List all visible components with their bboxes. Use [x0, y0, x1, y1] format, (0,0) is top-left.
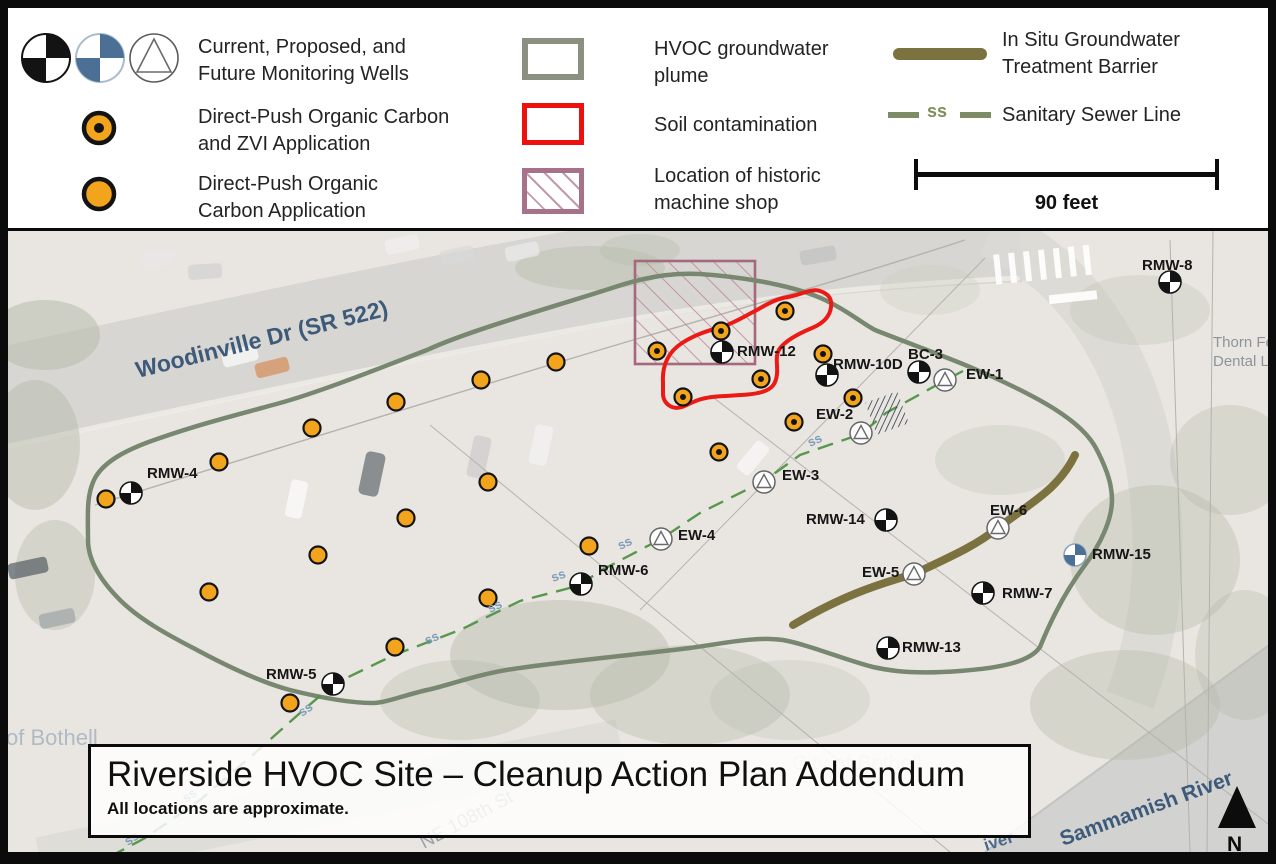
machine-shop-swatch — [522, 168, 584, 214]
carbon-application-icon — [79, 174, 119, 214]
legend-carbon-label: Direct-Push Organic Carbon Application — [198, 171, 378, 225]
well-label-ew-1: EW-1 — [966, 366, 1003, 383]
well-marker-rmw-15 — [1064, 544, 1086, 566]
carbon-injection-point — [387, 639, 404, 656]
scale-bar: 90 feet — [914, 159, 1219, 191]
well-label-bc-3: BC-3 — [908, 346, 943, 363]
scale-bar-tick — [914, 159, 918, 190]
well-label-ew-6: EW-6 — [990, 502, 1027, 519]
proposed-well-icon — [76, 34, 124, 82]
well-marker-ew-4 — [650, 528, 672, 550]
scale-bar-line — [914, 172, 1219, 177]
legend-soil-label: Soil contamination — [654, 112, 817, 139]
well-marker-rmw-14 — [875, 509, 897, 531]
scale-bar-label: 90 feet — [914, 192, 1219, 215]
well-marker-ew-1 — [934, 369, 956, 391]
thorn-dental-line2-label: Dental L — [1213, 353, 1268, 370]
current-well-icon — [22, 34, 70, 82]
carbon-injection-point — [304, 420, 321, 437]
north-arrow-label: N — [1227, 833, 1242, 852]
map-subtitle: All locations are approximate. — [107, 799, 1028, 819]
legend-monitoring-wells-label: Current, Proposed, and Future Monitoring… — [198, 34, 409, 88]
zvi-injection-point — [649, 343, 666, 360]
legend-barrier-label: In Situ Groundwater Treatment Barrier — [1002, 27, 1180, 81]
zvi-injection-point — [845, 390, 862, 407]
well-label-ew-2: EW-2 — [816, 406, 853, 423]
well-label-ew-4: EW-4 — [678, 527, 716, 544]
zvi-injection-point — [815, 346, 832, 363]
well-label-rmw-10d: RMW-10D — [833, 356, 903, 373]
legend-zvi-label: Direct-Push Organic Carbon and ZVI Appli… — [198, 104, 449, 158]
title-box: Riverside HVOC Site – Cleanup Action Pla… — [88, 744, 1031, 838]
well-label-rmw-5: RMW-5 — [266, 666, 317, 683]
legend-sewer-label: Sanitary Sewer Line — [1002, 102, 1181, 129]
scale-bar-tick — [1215, 159, 1219, 190]
well-marker-rmw-12 — [711, 341, 733, 363]
legend-machine-shop-label: Location of historic machine shop — [654, 163, 821, 217]
zvi-injection-point — [713, 323, 730, 340]
of-bothell-label: of Bothell — [8, 725, 98, 750]
zvi-injection-point — [711, 444, 728, 461]
zvi-injection-point — [777, 303, 794, 320]
well-marker-ew-3 — [753, 471, 775, 493]
legend: Current, Proposed, and Future Monitoring… — [8, 8, 1268, 228]
carbon-injection-point — [211, 454, 228, 471]
zvi-injection-point — [753, 371, 770, 388]
zvi-injection-point — [786, 414, 803, 431]
legend-plume-label: HVOC groundwater plume — [654, 36, 829, 90]
zvi-application-icon — [79, 108, 119, 148]
carbon-injection-point — [480, 474, 497, 491]
map-title: Riverside HVOC Site – Cleanup Action Pla… — [107, 755, 1028, 795]
well-marker-ew-6 — [987, 517, 1009, 539]
carbon-injection-point — [201, 584, 218, 601]
well-label-rmw-7: RMW-7 — [1002, 585, 1053, 602]
sewer-dash-icon — [888, 112, 919, 118]
well-marker-rmw-7 — [972, 582, 994, 604]
carbon-injection-point — [581, 538, 598, 555]
zvi-injection-point — [675, 389, 692, 406]
figure-frame: Current, Proposed, and Future Monitoring… — [0, 0, 1276, 864]
well-label-ew-5: EW-5 — [862, 564, 899, 581]
site-map: ssssssssssssssss RMW-4RMW-5RMW-6RMW-7RMW… — [8, 231, 1268, 852]
well-marker-rmw-8 — [1159, 271, 1181, 293]
well-label-rmw-12: RMW-12 — [737, 343, 796, 360]
thorn-dental-line1-label: Thorn Fe — [1213, 334, 1268, 351]
plume-swatch — [522, 38, 584, 80]
well-marker-rmw-4 — [120, 482, 142, 504]
carbon-injection-point — [388, 394, 405, 411]
monitoring-well-icons — [19, 31, 181, 85]
sewer-ss-icon: ss — [927, 101, 947, 122]
carbon-injection-point — [548, 354, 565, 371]
well-label-ew-3: EW-3 — [782, 467, 819, 484]
carbon-injection-point — [310, 547, 327, 564]
well-label-rmw-14: RMW-14 — [806, 511, 866, 528]
carbon-injection-point — [98, 491, 115, 508]
well-label-rmw-4: RMW-4 — [147, 465, 198, 482]
well-marker-ew-2 — [850, 422, 872, 444]
well-label-rmw-8: RMW-8 — [1142, 257, 1193, 274]
well-label-rmw-6: RMW-6 — [598, 562, 649, 579]
well-marker-rmw-13 — [877, 637, 899, 659]
well-marker-rmw-6 — [570, 573, 592, 595]
soil-contamination-swatch — [522, 103, 584, 145]
carbon-injection-point — [398, 510, 415, 527]
well-label-rmw-15: RMW-15 — [1092, 546, 1151, 563]
future-well-icon — [130, 34, 178, 82]
well-marker-bc-3 — [908, 361, 930, 383]
well-marker-ew-5 — [903, 563, 925, 585]
sewer-dash-icon — [960, 112, 991, 118]
carbon-injection-point — [473, 372, 490, 389]
treatment-barrier-swatch — [893, 48, 987, 60]
well-marker-rmw-5 — [322, 673, 344, 695]
well-label-rmw-13: RMW-13 — [902, 639, 961, 656]
